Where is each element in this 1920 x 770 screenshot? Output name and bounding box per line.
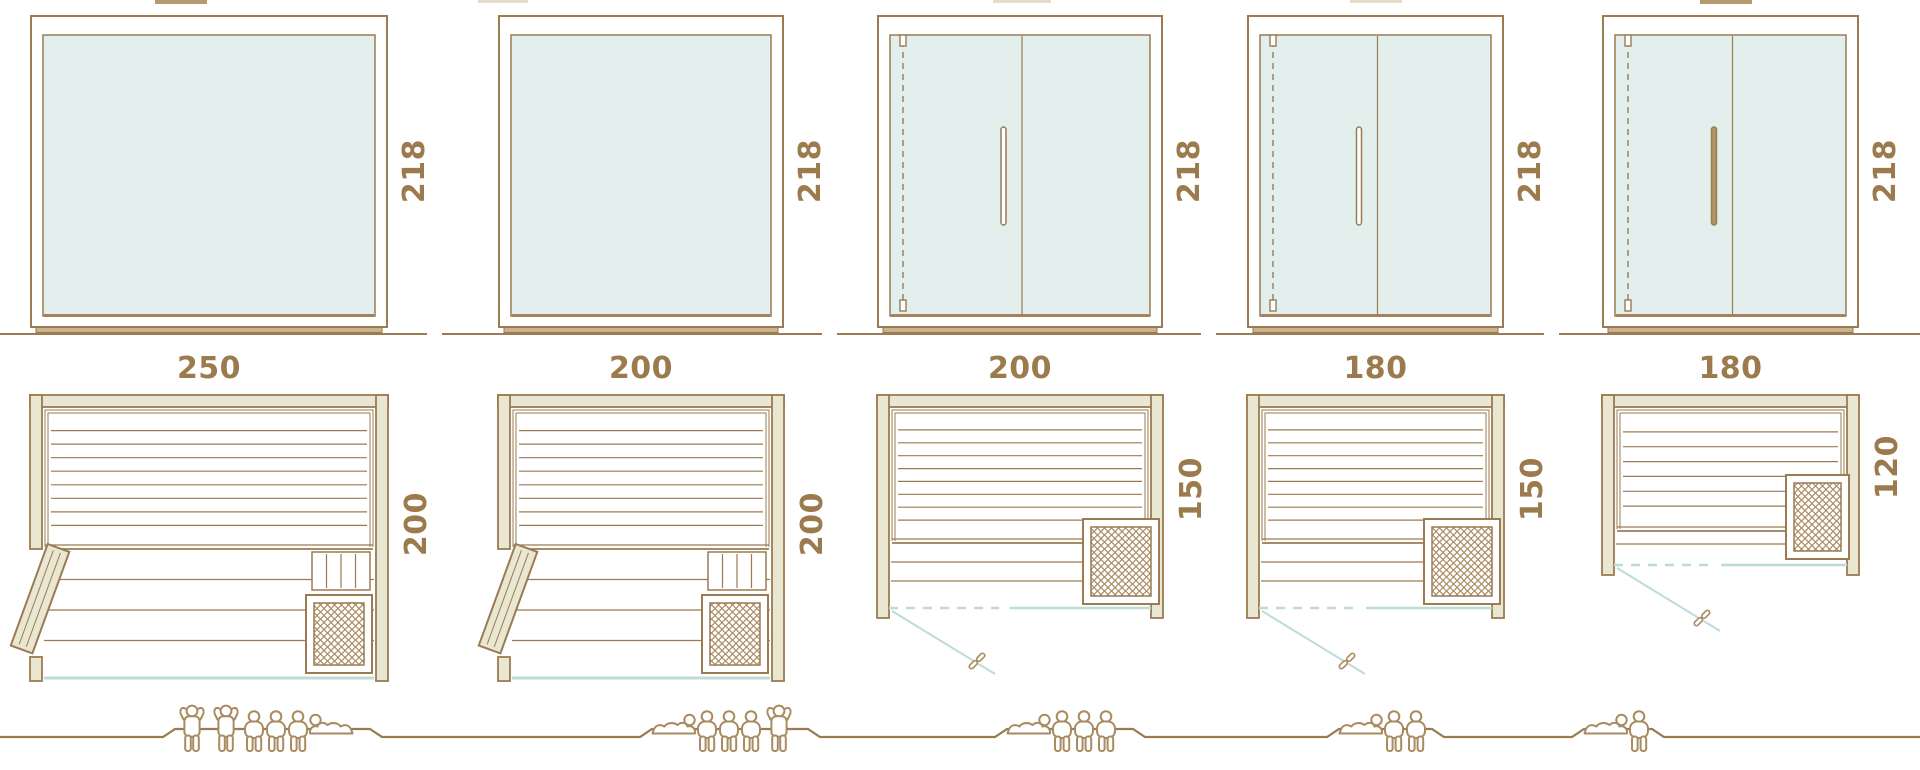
cropped-fragment [478, 0, 528, 3]
open-wood-door-icon [11, 544, 70, 653]
wall-panel-line [516, 413, 766, 547]
sitting-person-icon [1385, 711, 1403, 751]
wall [877, 395, 1163, 407]
sill [883, 328, 1157, 333]
sitting-person-icon [1075, 711, 1093, 751]
open-wood-door-icon [479, 544, 538, 653]
sill [36, 328, 382, 333]
wall [1247, 395, 1259, 618]
door-handle-icon [1357, 127, 1362, 225]
front-elevation-drawing [877, 15, 1163, 337]
heater-icon [1424, 519, 1500, 604]
glass-panel [1615, 35, 1846, 316]
wall [498, 395, 510, 549]
front-elevation-drawing [498, 15, 784, 337]
floor-plan-drawing [1542, 395, 1919, 662]
sitting-person-icon [1407, 711, 1425, 751]
sitting-person-icon [1053, 711, 1071, 751]
sill [504, 328, 778, 333]
wall [30, 395, 388, 407]
floor-plan-drawing [438, 395, 844, 770]
heater-icon [1786, 475, 1849, 559]
heater-icon [702, 595, 768, 673]
sitting-person-icon [1097, 711, 1115, 751]
wall [1602, 395, 1614, 575]
hinge-top-icon [900, 35, 906, 46]
floor-plan-drawing [1187, 395, 1564, 705]
capacity-group [1340, 711, 1426, 751]
cropped-fragment [1700, 0, 1752, 4]
heater-icon [1083, 519, 1159, 604]
upper-bench [45, 431, 373, 549]
cropped-fragment [155, 0, 207, 4]
floor-plan-drawing [0, 395, 448, 770]
capacity-group [1585, 711, 1649, 751]
wall [1247, 395, 1504, 407]
upper-bench [513, 431, 769, 549]
sitting-person-icon [1630, 711, 1648, 751]
bench-step [312, 552, 370, 590]
wall [30, 395, 42, 549]
wall [498, 395, 784, 407]
cropped-fragment [1350, 0, 1402, 3]
wall [30, 657, 42, 681]
sill [1253, 328, 1498, 333]
lying-person-icon [1585, 715, 1628, 734]
glass-panel [511, 35, 771, 316]
hinge-top-icon [1270, 35, 1276, 46]
hinge-bottom-icon [1625, 300, 1631, 311]
open-glass-door-line [892, 611, 995, 674]
open-glass-door-line [1262, 611, 1365, 674]
sauna-size-diagram: 218 250 200 218 200 200 218 200 150 218 … [0, 0, 1920, 770]
glass-panel [890, 35, 1150, 316]
door-handle-icon [1001, 127, 1006, 225]
hinge-bottom-icon [900, 300, 906, 311]
glass-panel [1260, 35, 1491, 316]
bench-step [708, 552, 766, 590]
wall [1602, 395, 1859, 407]
hinge-top-icon [1625, 35, 1631, 46]
front-elevation-drawing [1602, 15, 1859, 337]
lying-person-icon [1340, 715, 1383, 734]
open-glass-door-line [1617, 568, 1720, 631]
sill [1608, 328, 1853, 333]
wall [877, 395, 889, 618]
capacity-group [1008, 711, 1116, 751]
wall-panel-line [48, 413, 370, 547]
cropped-fragment [993, 0, 1051, 3]
glass-panel [43, 35, 375, 316]
heater-icon [306, 595, 372, 673]
lying-person-icon [1008, 715, 1051, 734]
wall [376, 395, 388, 681]
front-elevation-drawing [30, 15, 388, 337]
door-handle-icon [1712, 127, 1717, 225]
wall [772, 395, 784, 681]
front-elevation-drawing [1247, 15, 1504, 337]
hinge-bottom-icon [1270, 300, 1276, 311]
floor-plan-drawing [817, 395, 1223, 705]
wall [498, 657, 510, 681]
